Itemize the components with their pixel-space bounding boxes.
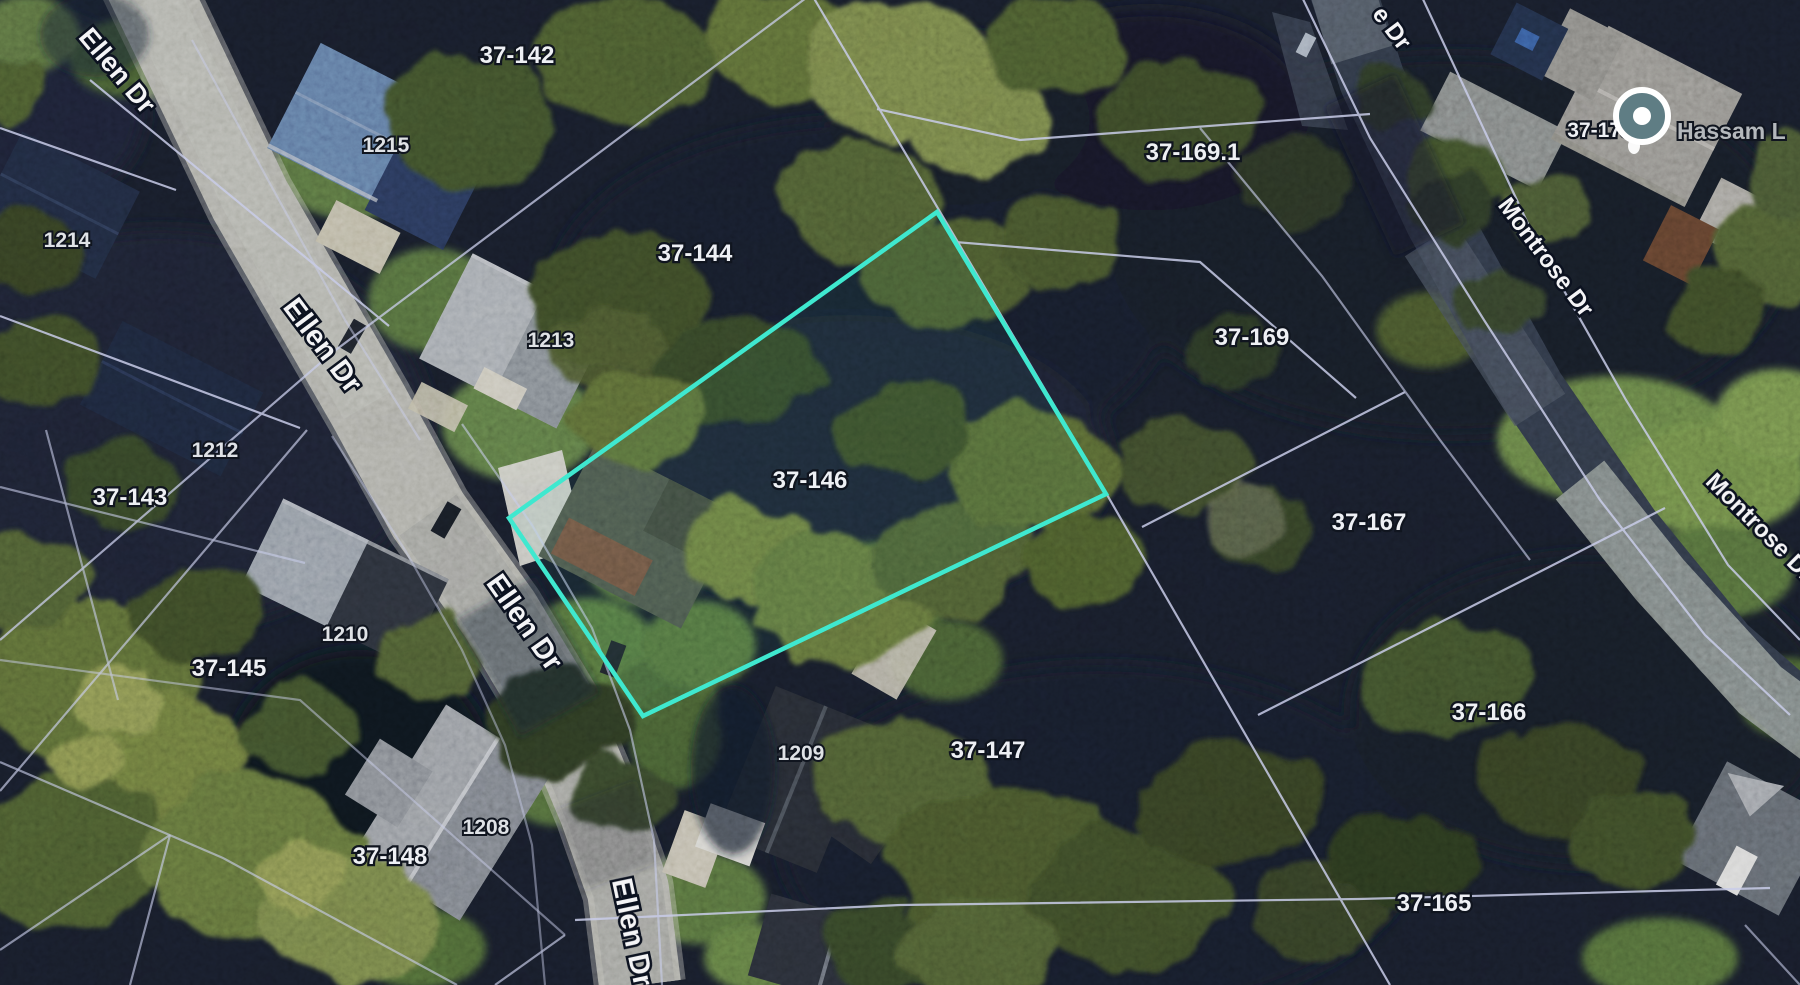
svg-text:1214: 1214 bbox=[44, 229, 91, 252]
svg-text:37-167: 37-167 bbox=[1332, 509, 1407, 536]
svg-text:37-169.1: 37-169.1 bbox=[1146, 139, 1241, 166]
svg-text:37-143: 37-143 bbox=[93, 484, 168, 511]
svg-text:1210: 1210 bbox=[322, 623, 369, 646]
svg-text:37-147: 37-147 bbox=[951, 737, 1026, 764]
svg-text:37-165: 37-165 bbox=[1397, 890, 1472, 917]
svg-text:37-142: 37-142 bbox=[480, 42, 555, 69]
svg-text:37-144: 37-144 bbox=[658, 240, 733, 267]
svg-text:1213: 1213 bbox=[528, 329, 575, 352]
svg-text:1212: 1212 bbox=[192, 439, 239, 462]
svg-text:37-145: 37-145 bbox=[192, 655, 267, 682]
svg-text:1209: 1209 bbox=[778, 742, 825, 765]
svg-text:Hassam L: Hassam L bbox=[1677, 118, 1786, 144]
svg-text:37-166: 37-166 bbox=[1452, 699, 1527, 726]
svg-text:1208: 1208 bbox=[463, 816, 510, 839]
svg-text:37-169: 37-169 bbox=[1215, 324, 1290, 351]
svg-text:37-146: 37-146 bbox=[773, 467, 848, 494]
svg-text:1215: 1215 bbox=[363, 134, 410, 157]
svg-text:37-148: 37-148 bbox=[353, 843, 428, 870]
